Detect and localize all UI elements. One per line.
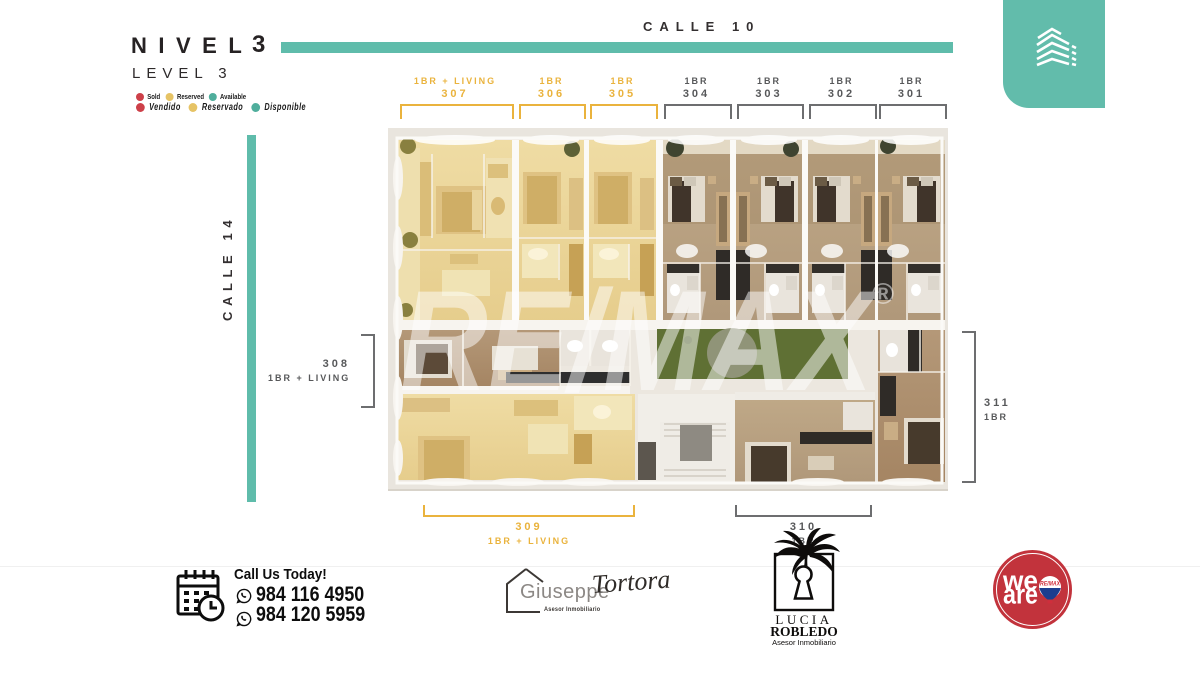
svg-text:RE/MAX: RE/MAX bbox=[400, 262, 879, 421]
svg-text:RE/MAX: RE/MAX bbox=[1040, 582, 1061, 588]
svg-text:are: are bbox=[1003, 579, 1038, 610]
svg-text:Asesor Inmobiliario: Asesor Inmobiliario bbox=[772, 638, 836, 647]
svg-text:ROBLEDO: ROBLEDO bbox=[770, 624, 838, 639]
svg-text:®: ® bbox=[872, 278, 894, 311]
